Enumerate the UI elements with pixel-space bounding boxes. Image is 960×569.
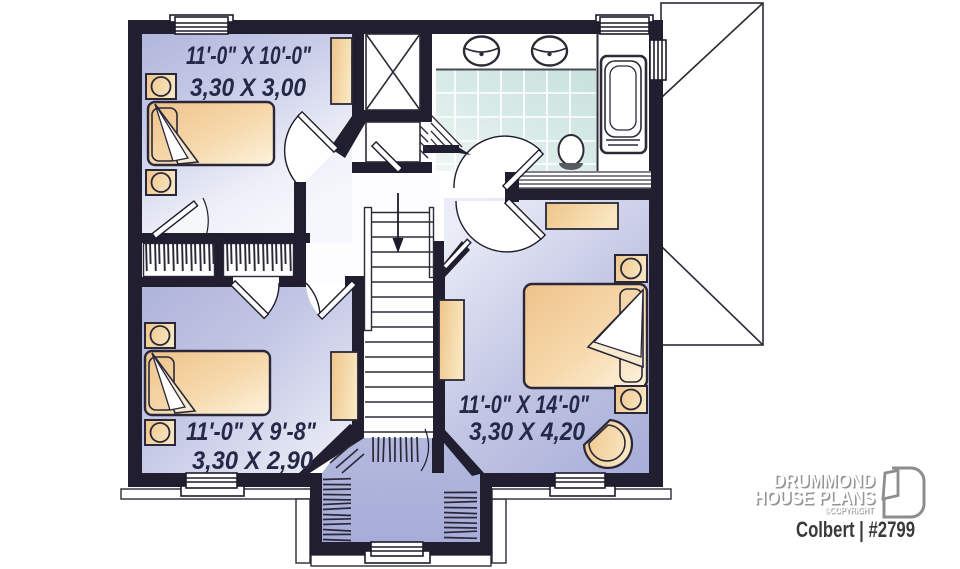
svg-text:3,30 X 2,90: 3,30 X 2,90 (192, 447, 313, 475)
svg-text:3,30 X 4,20: 3,30 X 4,20 (469, 418, 585, 446)
svg-text:3,30 X 3,00: 3,30 X 3,00 (190, 74, 306, 102)
svg-text:Colbert | #2799: Colbert | #2799 (796, 517, 915, 542)
svg-text:©COPYRIGHT: ©COPYRIGHT (824, 505, 873, 515)
svg-text:11'-0" X 14'-0": 11'-0" X 14'-0" (459, 391, 590, 419)
svg-text:11'-0" X 9'-8": 11'-0" X 9'-8" (186, 418, 317, 446)
svg-text:11'-0" X 10'-0": 11'-0" X 10'-0" (186, 42, 312, 70)
